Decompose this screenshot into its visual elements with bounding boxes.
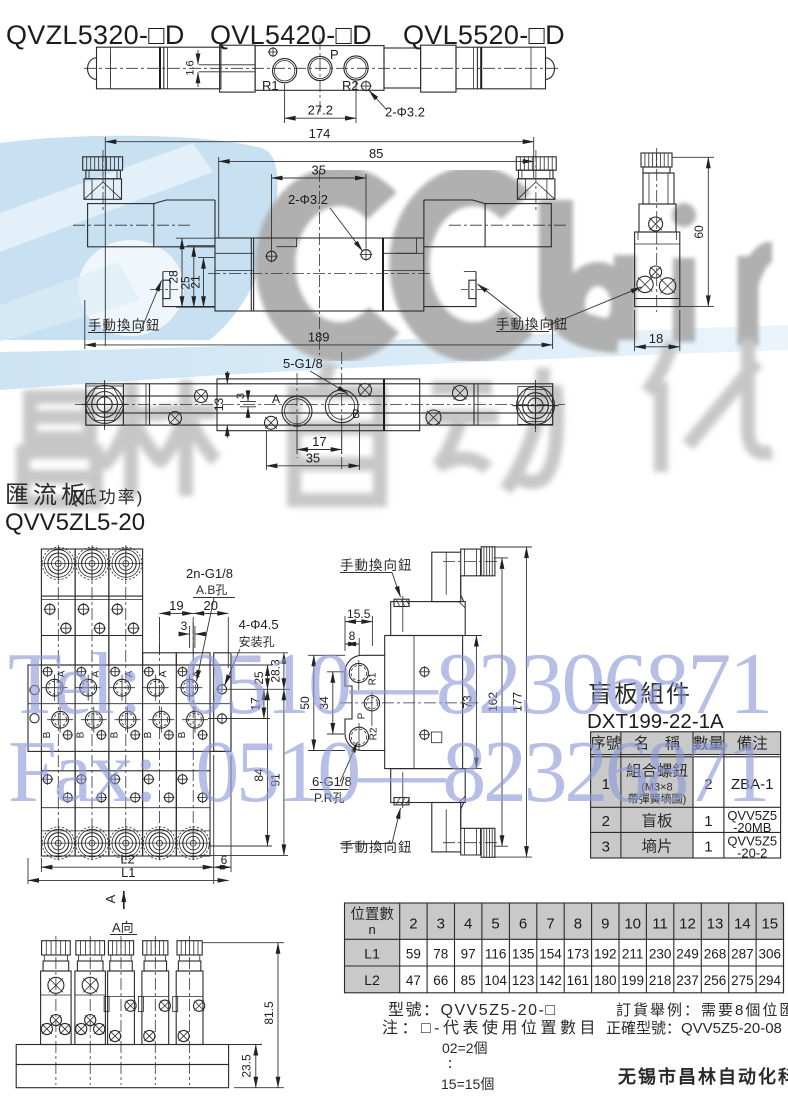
svg-text:97: 97: [461, 947, 476, 962]
svg-text:L1: L1: [121, 865, 135, 880]
svg-text:123: 123: [512, 973, 535, 988]
svg-text:18: 18: [649, 331, 663, 346]
svg-text:P: P: [330, 47, 339, 62]
svg-text:192: 192: [594, 947, 617, 962]
svg-text:注：□-代表使用位置數目: 注：□-代表使用位置數目: [382, 1019, 599, 1037]
svg-text:3: 3: [181, 619, 188, 633]
svg-text:手動換向鈕: 手動換向鈕: [340, 840, 413, 855]
svg-text:-20-2: -20-2: [737, 846, 767, 861]
svg-text:47: 47: [406, 973, 421, 988]
svg-text:8: 8: [574, 916, 582, 933]
svg-text:2-Φ3.2: 2-Φ3.2: [288, 192, 328, 207]
svg-text:294: 294: [759, 973, 782, 988]
svg-text:L1: L1: [364, 946, 380, 962]
svg-text:135: 135: [512, 947, 535, 962]
svg-text:2: 2: [409, 916, 417, 933]
svg-text:78: 78: [433, 947, 448, 962]
svg-text:275: 275: [731, 973, 754, 988]
svg-text:10: 10: [624, 916, 641, 933]
svg-text:13: 13: [707, 916, 724, 933]
svg-text:2n-G1/8: 2n-G1/8: [186, 566, 233, 581]
svg-text:(低功率): (低功率): [72, 488, 144, 507]
svg-text:9: 9: [601, 916, 609, 933]
svg-text:35: 35: [312, 163, 326, 178]
svg-text:306: 306: [759, 947, 782, 962]
svg-text:3: 3: [437, 916, 445, 933]
svg-text:15.5: 15.5: [347, 607, 371, 621]
svg-text:QVV5ZL5-20: QVV5ZL5-20: [5, 509, 145, 536]
svg-text:5: 5: [491, 916, 499, 933]
svg-text:7: 7: [546, 916, 554, 933]
svg-text:142: 142: [539, 973, 562, 988]
svg-text:型號：QVV5Z5-20-□: 型號：QVV5Z5-20-□: [388, 1001, 556, 1019]
svg-text:85: 85: [369, 146, 383, 161]
svg-text:B: B: [352, 407, 360, 421]
svg-text:A: A: [272, 392, 280, 406]
svg-text:27.2: 27.2: [308, 103, 333, 118]
svg-text:墒片: 墒片: [641, 838, 672, 856]
svg-text:位置數: 位置數: [350, 906, 394, 923]
svg-text:287: 287: [731, 947, 754, 962]
svg-text:手動換向鈕: 手動換向鈕: [88, 318, 161, 333]
svg-text:35: 35: [306, 450, 320, 465]
svg-text:230: 230: [649, 947, 672, 962]
svg-text:189: 189: [308, 329, 330, 344]
svg-text:訂貨舉例：需要8個位匯流板: 訂貨舉例：需要8個位匯流板: [616, 1001, 788, 1019]
svg-text:14: 14: [734, 916, 751, 933]
svg-text:4: 4: [464, 916, 472, 933]
svg-text:Fax : 0510—82326871: Fax : 0510—82326871: [8, 724, 767, 821]
svg-text:17: 17: [312, 434, 326, 449]
svg-text:19: 19: [169, 598, 183, 613]
svg-text:Tel : 0510—82306871: Tel : 0510—82306871: [8, 636, 771, 733]
svg-text:180: 180: [594, 973, 617, 988]
svg-text:20: 20: [204, 598, 218, 613]
svg-text:104: 104: [484, 973, 507, 988]
svg-text:15=15個: 15=15個: [441, 1076, 494, 1092]
svg-text:5-G1/8: 5-G1/8: [283, 356, 323, 371]
svg-text:154: 154: [539, 947, 562, 962]
svg-text:211: 211: [622, 947, 644, 962]
svg-text:81.5: 81.5: [262, 1001, 276, 1025]
svg-text:85: 85: [461, 973, 476, 988]
svg-text:161: 161: [567, 973, 590, 988]
svg-text:237: 237: [676, 973, 699, 988]
svg-text:249: 249: [676, 947, 699, 962]
svg-text:2-Φ3.2: 2-Φ3.2: [385, 105, 425, 120]
svg-text:174: 174: [309, 126, 331, 141]
svg-text:59: 59: [406, 947, 421, 962]
svg-text:12: 12: [679, 916, 696, 933]
svg-text:3: 3: [602, 839, 610, 856]
svg-text:A.B孔: A.B孔: [196, 583, 227, 597]
svg-text:6: 6: [519, 916, 527, 933]
svg-text:15: 15: [761, 916, 778, 933]
svg-text:23.5: 23.5: [240, 1054, 254, 1078]
svg-text:116: 116: [485, 947, 507, 962]
svg-text:L2: L2: [364, 972, 380, 988]
svg-text:60: 60: [692, 225, 706, 239]
svg-text:A: A: [103, 894, 118, 903]
svg-text:QVZL5320-□D: QVZL5320-□D: [6, 20, 185, 50]
svg-text:11: 11: [652, 916, 668, 933]
svg-text:256: 256: [704, 973, 727, 988]
svg-text:218: 218: [649, 973, 672, 988]
svg-text:3: 3: [235, 393, 247, 399]
svg-text:手動換向鈕: 手動換向鈕: [340, 558, 413, 573]
svg-text:21: 21: [189, 275, 203, 289]
svg-text:A向: A向: [112, 920, 134, 935]
svg-text:02=2個: 02=2個: [442, 1040, 488, 1056]
svg-text:1: 1: [704, 839, 712, 856]
svg-text:199: 199: [621, 973, 644, 988]
svg-text:6: 6: [221, 853, 228, 867]
svg-text:66: 66: [433, 973, 448, 988]
svg-text:4-Φ4.5: 4-Φ4.5: [239, 617, 279, 632]
svg-text:R1: R1: [262, 78, 279, 93]
svg-text:1.6: 1.6: [185, 60, 197, 75]
svg-text:173: 173: [567, 947, 590, 962]
svg-text:268: 268: [704, 947, 727, 962]
svg-text:无锡市昌林自动化科技: 无锡市昌林自动化科技: [618, 1066, 788, 1087]
svg-text:正確型號：QVV5Z5-20-08: 正確型號：QVV5Z5-20-08: [606, 1020, 782, 1037]
svg-text:手動換向鈕: 手動換向鈕: [496, 317, 569, 332]
svg-text:n: n: [368, 922, 375, 937]
svg-text:13: 13: [212, 398, 226, 412]
